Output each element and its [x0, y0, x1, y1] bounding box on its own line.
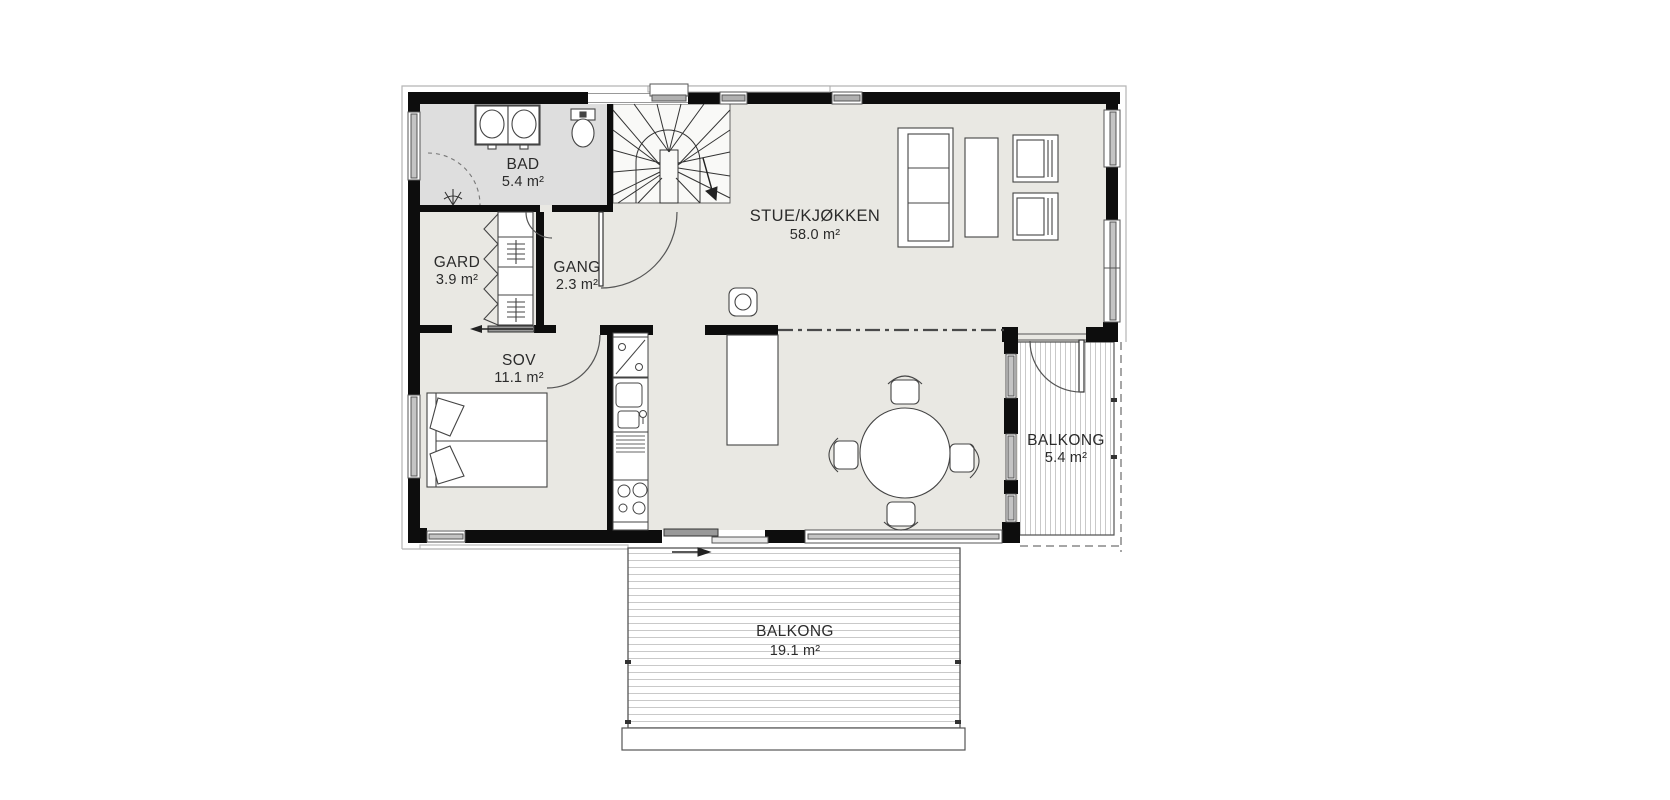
room-area-sov: 11.1 m² — [494, 370, 543, 386]
floor-plan: BAD 5.4 m² GARD 3.9 m² GANG 2.3 m² SOV 1… — [0, 0, 1670, 800]
balcony-front-step — [622, 728, 965, 750]
armchair — [1013, 135, 1058, 182]
coffee-table — [965, 138, 998, 237]
armchair — [1013, 193, 1058, 240]
hood-icon — [729, 288, 757, 316]
stair-newel — [660, 150, 678, 203]
room-label-stue: STUE/KJØKKEN — [750, 207, 880, 225]
room-label-gang: GANG — [553, 259, 600, 276]
dining-table — [860, 408, 950, 498]
room-area-balkong-front: 19.1 m² — [770, 643, 821, 659]
bed — [427, 393, 547, 487]
sliding-door — [664, 529, 768, 543]
room-label-sov: SOV — [502, 352, 536, 369]
room-label-bad: BAD — [506, 156, 539, 173]
room-label-balkong-side: BALKONG — [1027, 432, 1105, 449]
room-area-gang: 2.3 m² — [556, 277, 598, 293]
dining-chair — [884, 502, 918, 530]
sofa — [898, 128, 953, 247]
dining-chair — [888, 376, 922, 404]
room-area-balkong-side: 5.4 m² — [1045, 450, 1087, 466]
window-top-stair — [650, 84, 688, 96]
kitchen-counter — [613, 333, 648, 530]
room-area-stue: 58.0 m² — [790, 227, 841, 243]
double-sink — [475, 105, 540, 149]
toilet — [571, 109, 595, 147]
bedroom-sliding-door — [470, 325, 534, 333]
room-area-bad: 5.4 m² — [502, 174, 544, 190]
room-area-gard: 3.9 m² — [436, 272, 478, 288]
dishwasher — [613, 337, 648, 377]
room-label-balkong-front: BALKONG — [756, 623, 834, 640]
stove — [613, 480, 648, 522]
room-label-gard: GARD — [434, 254, 480, 271]
balcony-door-leaf — [1079, 340, 1084, 392]
